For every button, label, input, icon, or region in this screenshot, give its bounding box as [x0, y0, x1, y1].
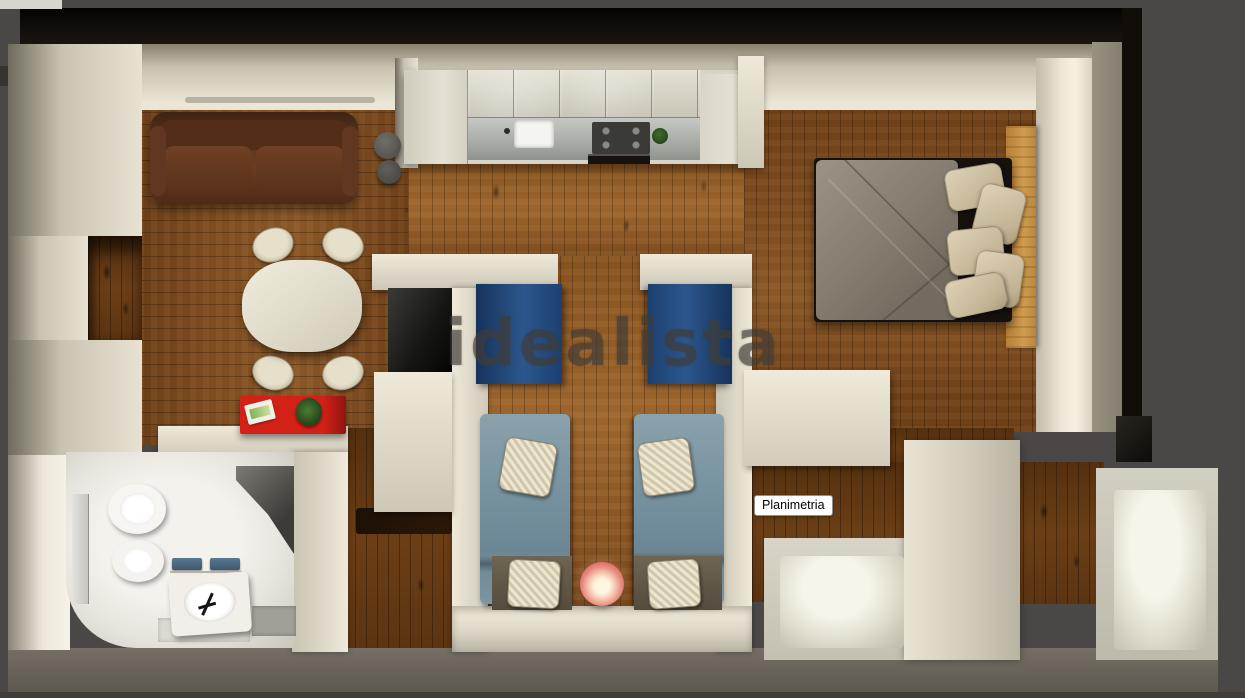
kitchen-upper-cabinets [468, 70, 700, 118]
side-pouf-1 [374, 132, 401, 159]
closet-block [374, 372, 452, 512]
corridor-floor [408, 160, 760, 266]
floor-lamp [580, 562, 624, 606]
bidet [112, 540, 164, 582]
right-wall-top-surface [1092, 42, 1122, 432]
duvet-fold-line-2 [828, 179, 958, 320]
alcove-b-floor [1114, 490, 1206, 650]
counter-plant [652, 128, 668, 144]
hall-doorway-dark [1116, 416, 1152, 462]
shower-glass-panel [72, 494, 88, 604]
floor-drain-mat [252, 606, 296, 636]
hall-floor-3 [1012, 462, 1104, 604]
kitchen-end-wall [738, 56, 764, 168]
bottom-edge-strip [0, 692, 1245, 698]
left-wall-mid [8, 236, 88, 340]
twin-foot-pillow-left [507, 559, 561, 610]
kitchen-hob [592, 122, 650, 154]
bottom-outer-wall [8, 648, 1218, 692]
kitchen-oven [588, 154, 650, 164]
dining-table [242, 260, 362, 352]
wall-niche-floor [88, 236, 142, 340]
sofa-cushion-right [256, 146, 344, 194]
side-pouf-2 [377, 160, 401, 184]
left-wall-lower [8, 340, 142, 455]
twin-pillow-right [636, 437, 695, 498]
toilet [108, 484, 166, 534]
bathroom-right-wall [292, 452, 348, 652]
magazine [244, 399, 276, 425]
left-wall-bathroom [8, 455, 70, 650]
right-wall-dark-edge [1122, 8, 1142, 432]
kitchen-unit [404, 70, 744, 164]
cursor-tooltip: Planimetria [754, 495, 833, 516]
closet-opening-dark [388, 288, 452, 372]
duvet-fold-line-1 [828, 160, 958, 299]
twin-pillow-left [498, 436, 559, 498]
kitchen-faucet [504, 128, 510, 134]
magazine-cover [249, 405, 271, 420]
right-wall-inner [1036, 58, 1092, 432]
towel-right [210, 558, 240, 570]
hall-partition-wall [744, 370, 890, 466]
mid-wall-block [904, 440, 1020, 660]
floorplan-render[interactable]: idealista Planimetria [0, 0, 1245, 698]
watermark: idealista [445, 312, 782, 376]
twin-foot-pillow-right [646, 558, 701, 610]
sofa-armrest-right [342, 126, 358, 196]
toilet-bowl [120, 493, 156, 525]
sofa-armrest-left [150, 126, 166, 196]
washbasin-unit [168, 571, 252, 636]
top-outer-wall-dark [20, 8, 1140, 44]
sideboard-plant [296, 398, 322, 426]
towel-left [172, 558, 202, 570]
alcove-a-floor [780, 556, 904, 648]
left-wall-upper [8, 44, 142, 236]
window-radiator-line [185, 97, 375, 103]
kitchen-cabinet-left [404, 70, 468, 164]
bidet-bowl [123, 548, 153, 574]
sideboard [240, 396, 346, 434]
top-left-sliver [0, 0, 62, 9]
kitchen-sink [514, 120, 554, 148]
sofa-cushion-left [164, 146, 252, 194]
twin-bottom-wall [452, 606, 752, 652]
double-bed-duvet [816, 160, 958, 320]
sofa [150, 112, 358, 204]
